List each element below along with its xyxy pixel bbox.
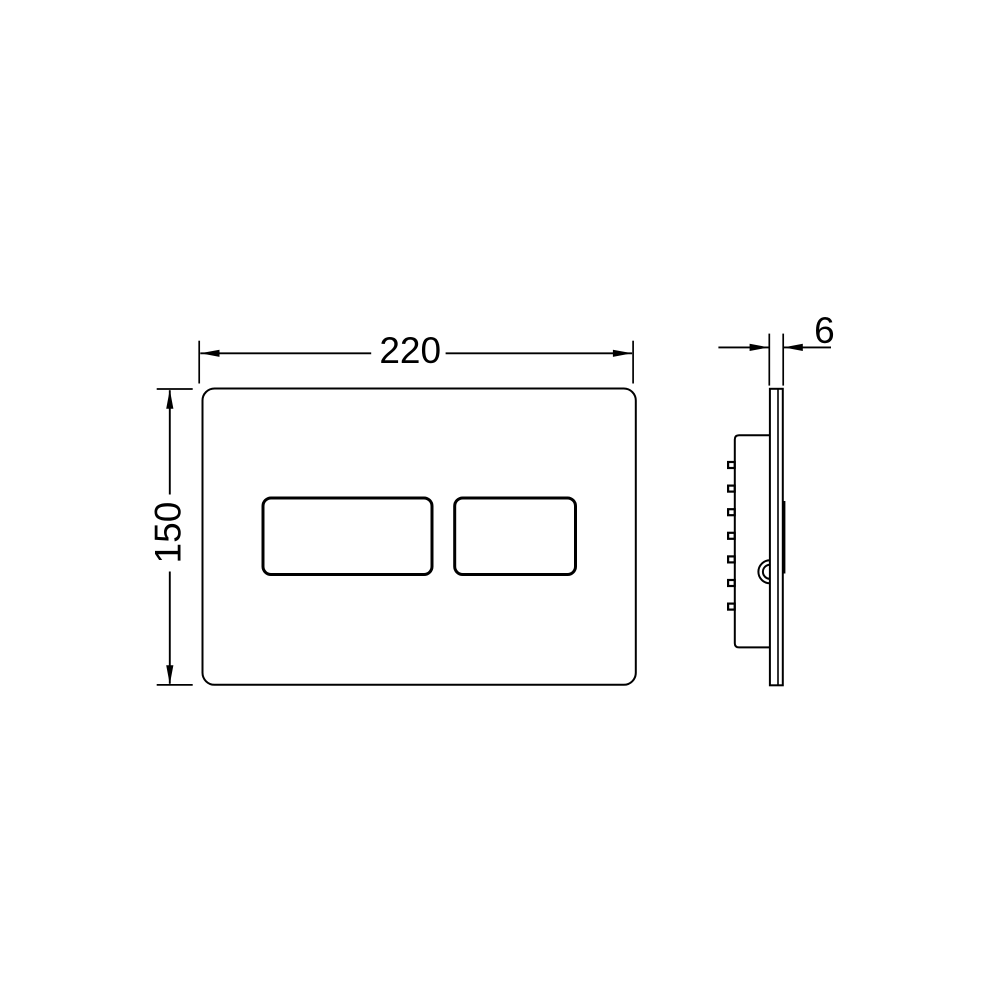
svg-text:6: 6 xyxy=(814,310,835,351)
svg-text:150: 150 xyxy=(147,502,188,564)
svg-text:220: 220 xyxy=(379,330,441,371)
